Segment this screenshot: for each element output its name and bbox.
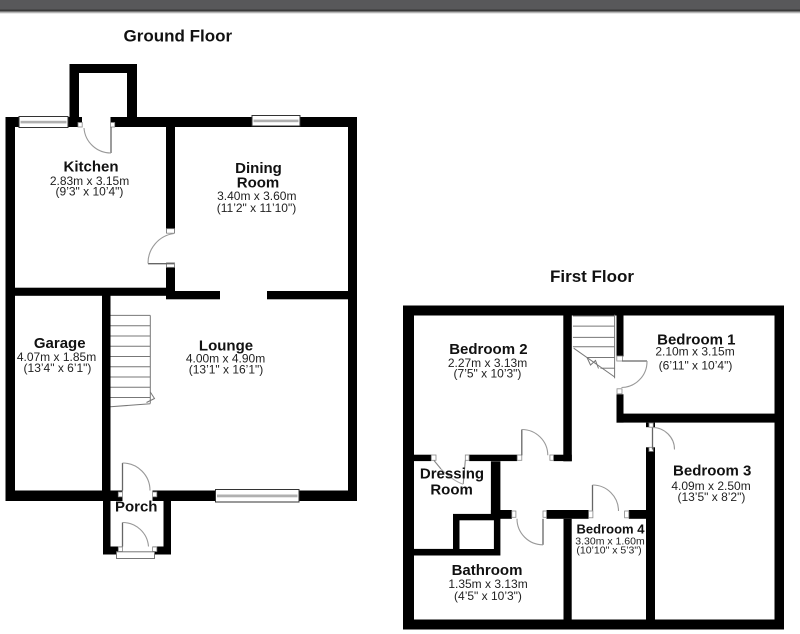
svg-text:(4’5" x 10’3"): (4’5" x 10’3") bbox=[454, 589, 522, 603]
svg-text:Dressing: Dressing bbox=[420, 465, 484, 482]
svg-text:(11’2" x 11’10"): (11’2" x 11’10") bbox=[217, 201, 296, 215]
svg-text:Ground Floor: Ground Floor bbox=[124, 27, 233, 46]
svg-text:Room: Room bbox=[430, 482, 473, 499]
svg-text:Kitchen: Kitchen bbox=[63, 159, 118, 176]
svg-text:Bedroom 3: Bedroom 3 bbox=[673, 462, 751, 479]
svg-text:(13’4" x 6’1"): (13’4" x 6’1") bbox=[24, 361, 92, 375]
svg-text:First Floor: First Floor bbox=[550, 267, 634, 286]
svg-text:Bedroom 4: Bedroom 4 bbox=[577, 522, 646, 537]
svg-text:Porch: Porch bbox=[115, 498, 158, 515]
svg-text:(13’1" x 16’1"): (13’1" x 16’1") bbox=[189, 363, 264, 377]
svg-text:(10’10" x 5’3"): (10’10" x 5’3") bbox=[576, 544, 641, 556]
svg-text:(7’5" x 10’3"): (7’5" x 10’3") bbox=[454, 367, 522, 381]
svg-text:(9’3" x 10’4"): (9’3" x 10’4") bbox=[56, 184, 124, 198]
svg-text:2.10m x 3.15m: 2.10m x 3.15m bbox=[655, 345, 734, 359]
svg-text:(13’5" x 8’2"): (13’5" x 8’2") bbox=[677, 490, 745, 504]
svg-text:(6’11" x 10’4"): (6’11" x 10’4") bbox=[659, 358, 733, 372]
